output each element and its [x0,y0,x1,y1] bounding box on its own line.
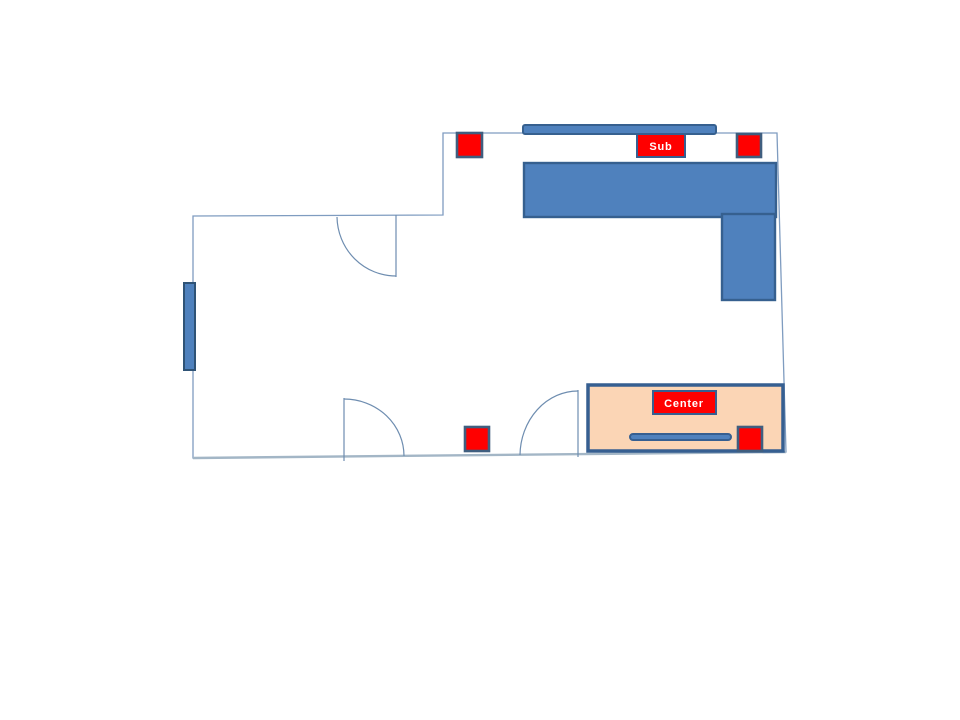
slide-canvas: Sub Center [0,0,960,720]
soundbar [630,434,731,440]
door-bottom-left-swing-arc [344,399,404,456]
center-label: Center [664,398,704,410]
speaker-bottom-center [465,427,489,451]
door-bottom-right-swing-arc [520,391,578,455]
speaker-top-left [457,133,482,157]
speaker-top-right [737,134,761,157]
desk-return [722,214,775,300]
floor-plan-canvas: Sub Center [0,0,960,720]
floor-baseline [193,452,786,458]
sub-label: Sub [649,141,672,153]
speaker-bottom-right [738,427,762,451]
wall-panel [184,283,195,370]
desk [524,163,776,217]
door-top-swing-arc [337,217,396,276]
wall-shelf [523,125,716,134]
